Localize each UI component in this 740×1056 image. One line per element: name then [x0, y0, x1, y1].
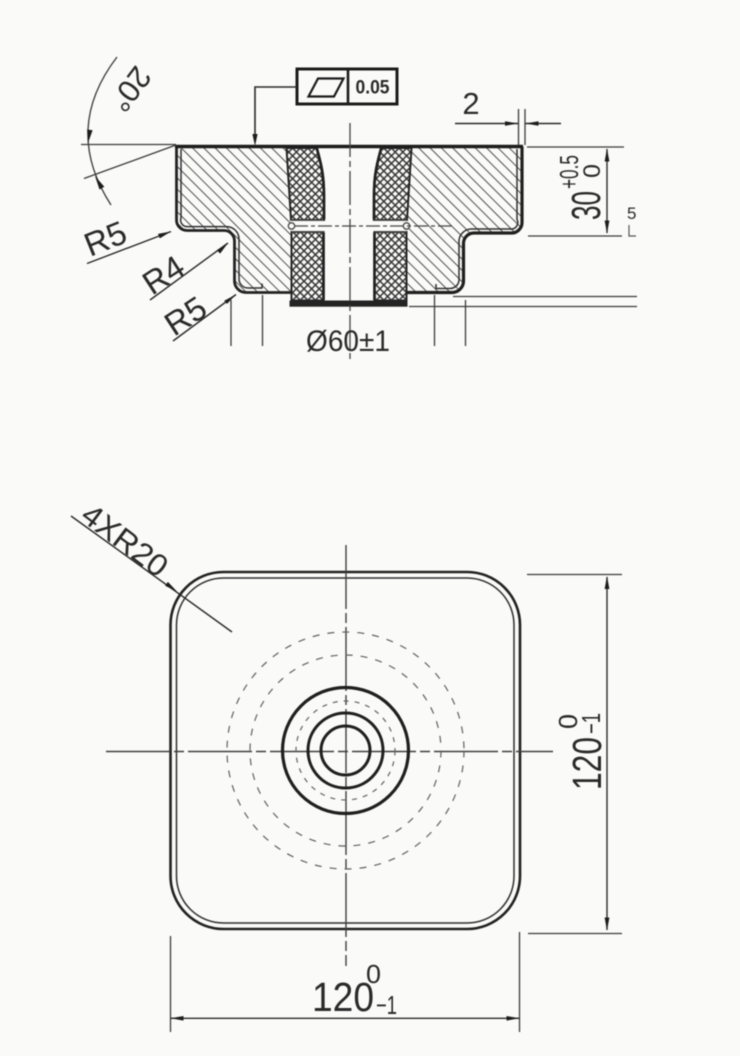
svg-text:2: 2	[462, 86, 479, 121]
svg-text:0.05: 0.05	[356, 78, 390, 99]
svg-text:30: 30	[563, 191, 609, 220]
svg-text:0: 0	[579, 164, 606, 178]
svg-text:−1: −1	[376, 990, 397, 1020]
svg-text:120: 120	[564, 737, 610, 790]
svg-text:0: 0	[366, 959, 381, 989]
svg-text:Ø60±1: Ø60±1	[306, 325, 390, 358]
svg-text:120: 120	[312, 974, 374, 1020]
svg-text:−1: −1	[576, 713, 606, 734]
svg-text:5: 5	[627, 204, 636, 223]
